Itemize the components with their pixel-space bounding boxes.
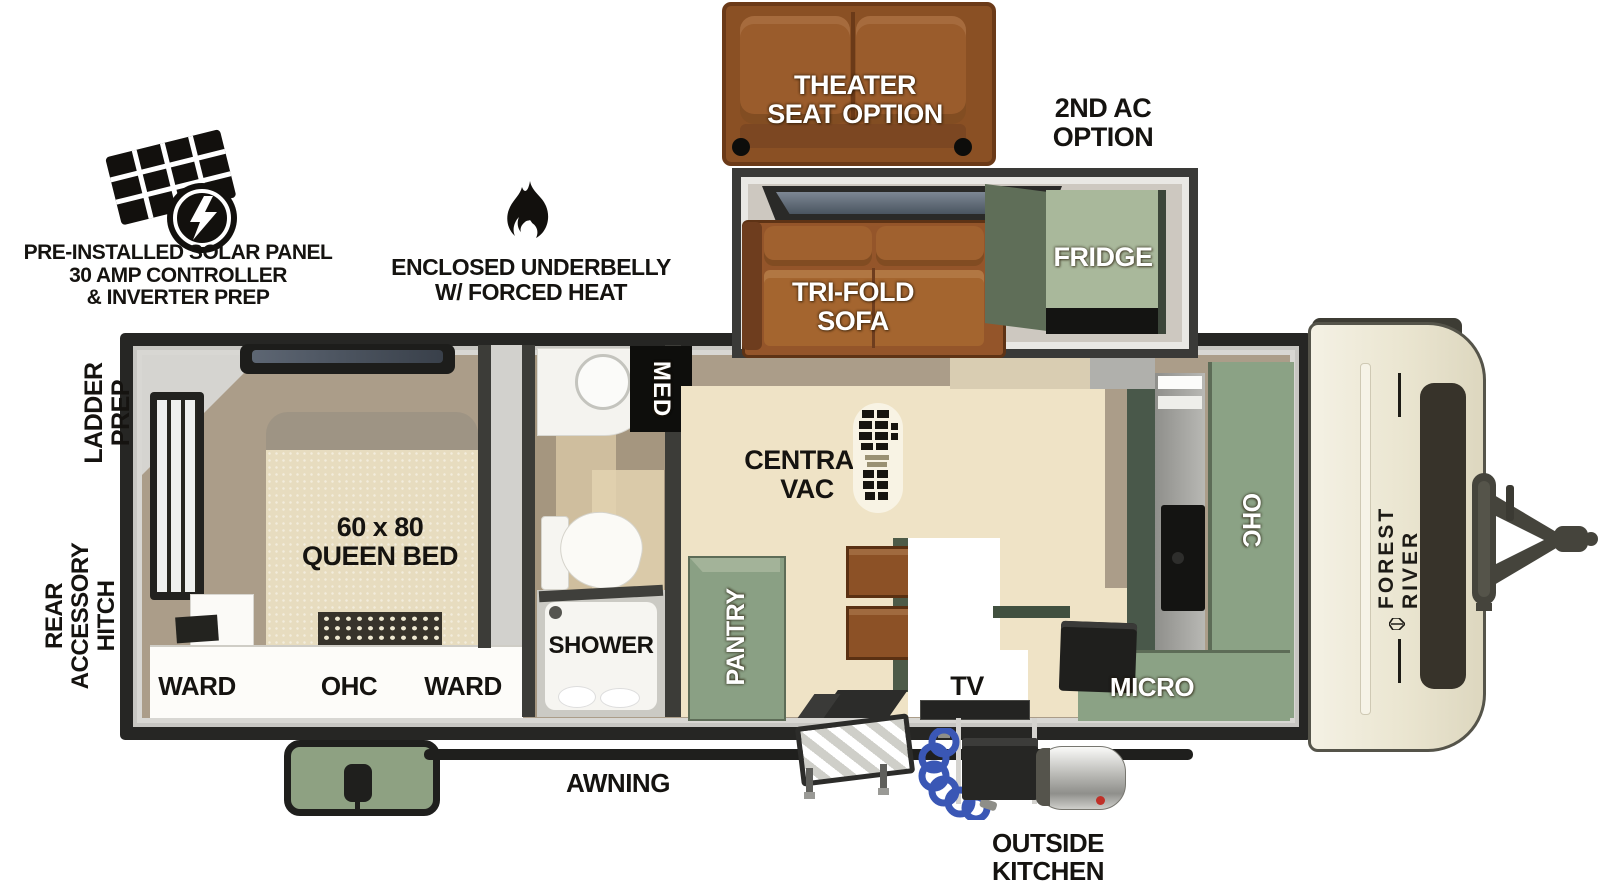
shower-towel-2 bbox=[600, 688, 640, 708]
outside-kitchen-box bbox=[962, 738, 1038, 800]
logo-rule-left bbox=[1398, 639, 1401, 683]
boot-print-icon bbox=[852, 402, 904, 514]
cooktop-knob bbox=[1172, 552, 1184, 564]
step-foot-right bbox=[878, 788, 889, 795]
logo-rule-right bbox=[1398, 373, 1401, 417]
bedroom-right-wall bbox=[478, 345, 491, 648]
kitchen-counter-edge bbox=[993, 606, 1070, 618]
step-leg-left bbox=[806, 768, 813, 794]
dinette-chair-1 bbox=[846, 546, 912, 598]
bathroom-left-wall bbox=[522, 345, 535, 717]
solar-callout-text: PRE-INSTALLED SOLAR PANEL 30 AMP CONTROL… bbox=[8, 238, 348, 314]
bedroom-tv-unit bbox=[175, 615, 219, 644]
kitchen-cabinet-side bbox=[1127, 360, 1155, 656]
tank-valve bbox=[1096, 796, 1105, 805]
pocket-door-track bbox=[491, 345, 522, 645]
fridge-label: FRIDGE bbox=[1046, 240, 1160, 276]
ladder-prep-label: LADDER PREP bbox=[79, 338, 137, 488]
outside-kitchen-label: OUTSIDE KITCHEN bbox=[963, 828, 1133, 886]
forest-river-logo: FOREST RIVER bbox=[1382, 373, 1416, 683]
forest-river-text: FOREST RIVER bbox=[1375, 426, 1423, 609]
bedroom-vent-glass bbox=[252, 350, 443, 363]
storage-handle bbox=[344, 764, 372, 802]
sofa-back-cushion-right bbox=[876, 226, 984, 266]
fridge-side bbox=[985, 184, 1055, 332]
pantry-label: PANTRY bbox=[719, 562, 753, 712]
cap-molding bbox=[1360, 363, 1371, 715]
awning-label: AWNING bbox=[553, 768, 683, 798]
kitchen-sink-drainer bbox=[1158, 396, 1202, 409]
flame-icon bbox=[504, 180, 558, 246]
ward-left-label: WARD bbox=[137, 662, 257, 710]
dinette-chair-2 bbox=[846, 606, 912, 660]
kitchen-ohc-label: OHC bbox=[1234, 465, 1268, 575]
kitchen-sink bbox=[1158, 376, 1202, 389]
tv-panel bbox=[920, 700, 1030, 720]
sofa-back-cushion-left bbox=[764, 226, 872, 266]
theater-pin-left bbox=[732, 138, 750, 156]
second-ac-label: 2ND AC OPTION bbox=[1018, 94, 1188, 152]
queen-bed-label: 60 x 80 QUEEN BED bbox=[290, 512, 470, 572]
shower-label: SHOWER bbox=[541, 630, 661, 662]
rv-floorplan-diagram: PRE-INSTALLED SOLAR PANEL 30 AMP CONTROL… bbox=[0, 0, 1600, 893]
bathroom-sink bbox=[575, 354, 631, 410]
storage-handle-stem bbox=[355, 802, 360, 813]
tv-label: TV bbox=[937, 672, 997, 702]
bedroom-window-panes bbox=[157, 400, 197, 592]
step-leg-right bbox=[880, 764, 887, 790]
theater-pin-right bbox=[954, 138, 972, 156]
step-foot-left bbox=[804, 792, 815, 799]
theater-seat-label: THEATER SEAT OPTION bbox=[745, 70, 965, 130]
ward-right-label: WARD bbox=[403, 662, 523, 710]
micro-label: MICRO bbox=[1092, 670, 1212, 704]
solar-panel-icon bbox=[100, 126, 250, 254]
hitch-a-frame bbox=[1470, 455, 1600, 625]
shower-towel-1 bbox=[558, 686, 596, 708]
galley-counter-top bbox=[1090, 355, 1155, 389]
med-label: MED bbox=[646, 349, 676, 429]
underbelly-callout-text: ENCLOSED UNDERBELLY W/ FORCED HEAT bbox=[351, 252, 711, 308]
cap-window bbox=[1420, 383, 1466, 689]
shower-head bbox=[549, 606, 562, 619]
rear-accessory-hitch-label: REAR ACCESSORY HITCH bbox=[39, 511, 123, 721]
bedroom-ohc-label: OHC bbox=[289, 662, 409, 710]
tank-cap bbox=[1036, 748, 1050, 806]
tri-fold-sofa-label: TRI-FOLD SOFA bbox=[763, 278, 943, 336]
sofa-armrest bbox=[742, 222, 762, 350]
fridge-door-shadow bbox=[1046, 308, 1160, 334]
forest-river-emblem-icon bbox=[1389, 618, 1410, 630]
